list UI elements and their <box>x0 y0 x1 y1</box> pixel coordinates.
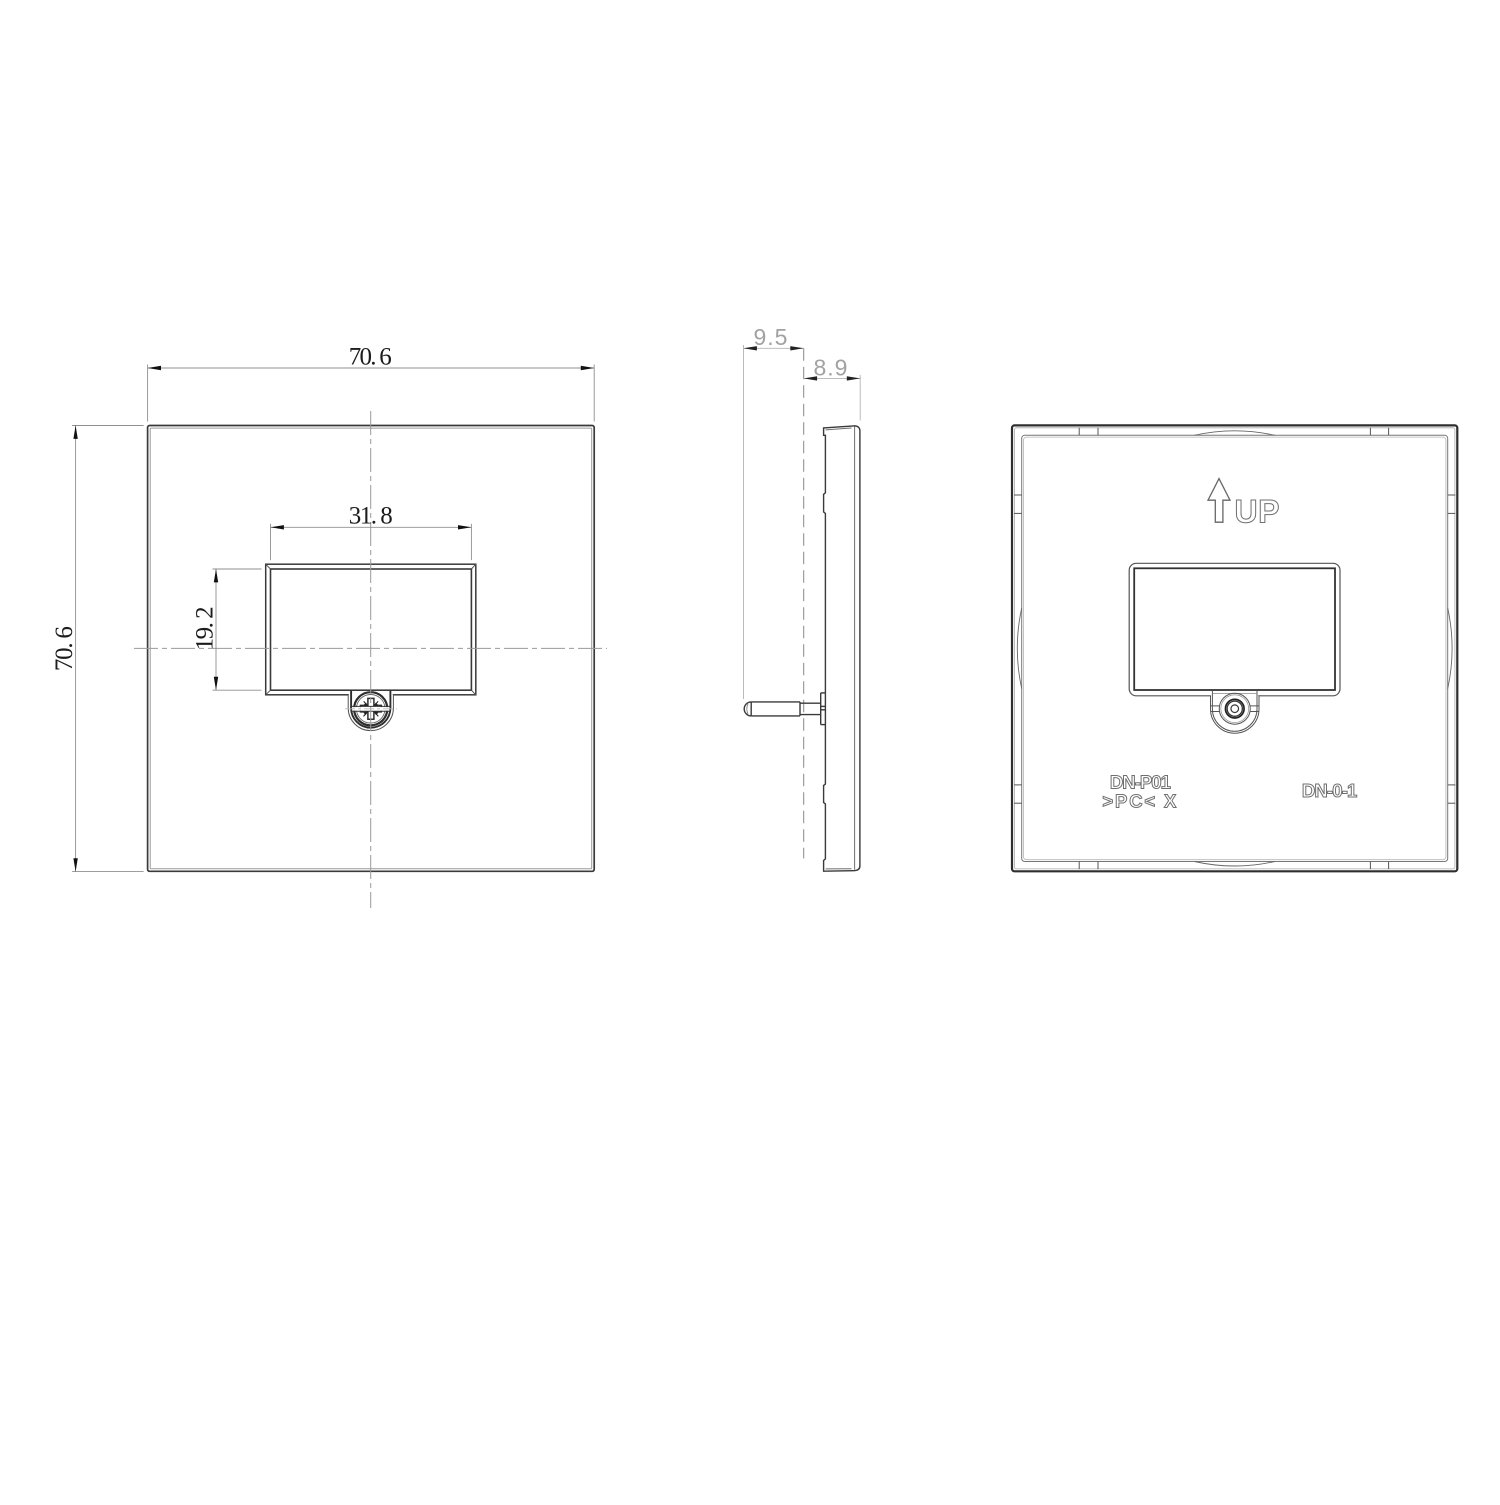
svg-text:31. 8: 31. 8 <box>349 503 393 530</box>
svg-text:9.5: 9.5 <box>754 324 789 350</box>
svg-text:70. 6: 70. 6 <box>349 343 392 370</box>
svg-text:19. 2: 19. 2 <box>191 606 218 650</box>
svg-text:8.9: 8.9 <box>814 354 849 380</box>
svg-text:70. 6: 70. 6 <box>51 626 78 671</box>
svg-text:UP: UP <box>1235 494 1280 530</box>
svg-text:DN-P01: DN-P01 <box>1110 772 1171 793</box>
svg-text:DN-0-1: DN-0-1 <box>1302 780 1357 801</box>
